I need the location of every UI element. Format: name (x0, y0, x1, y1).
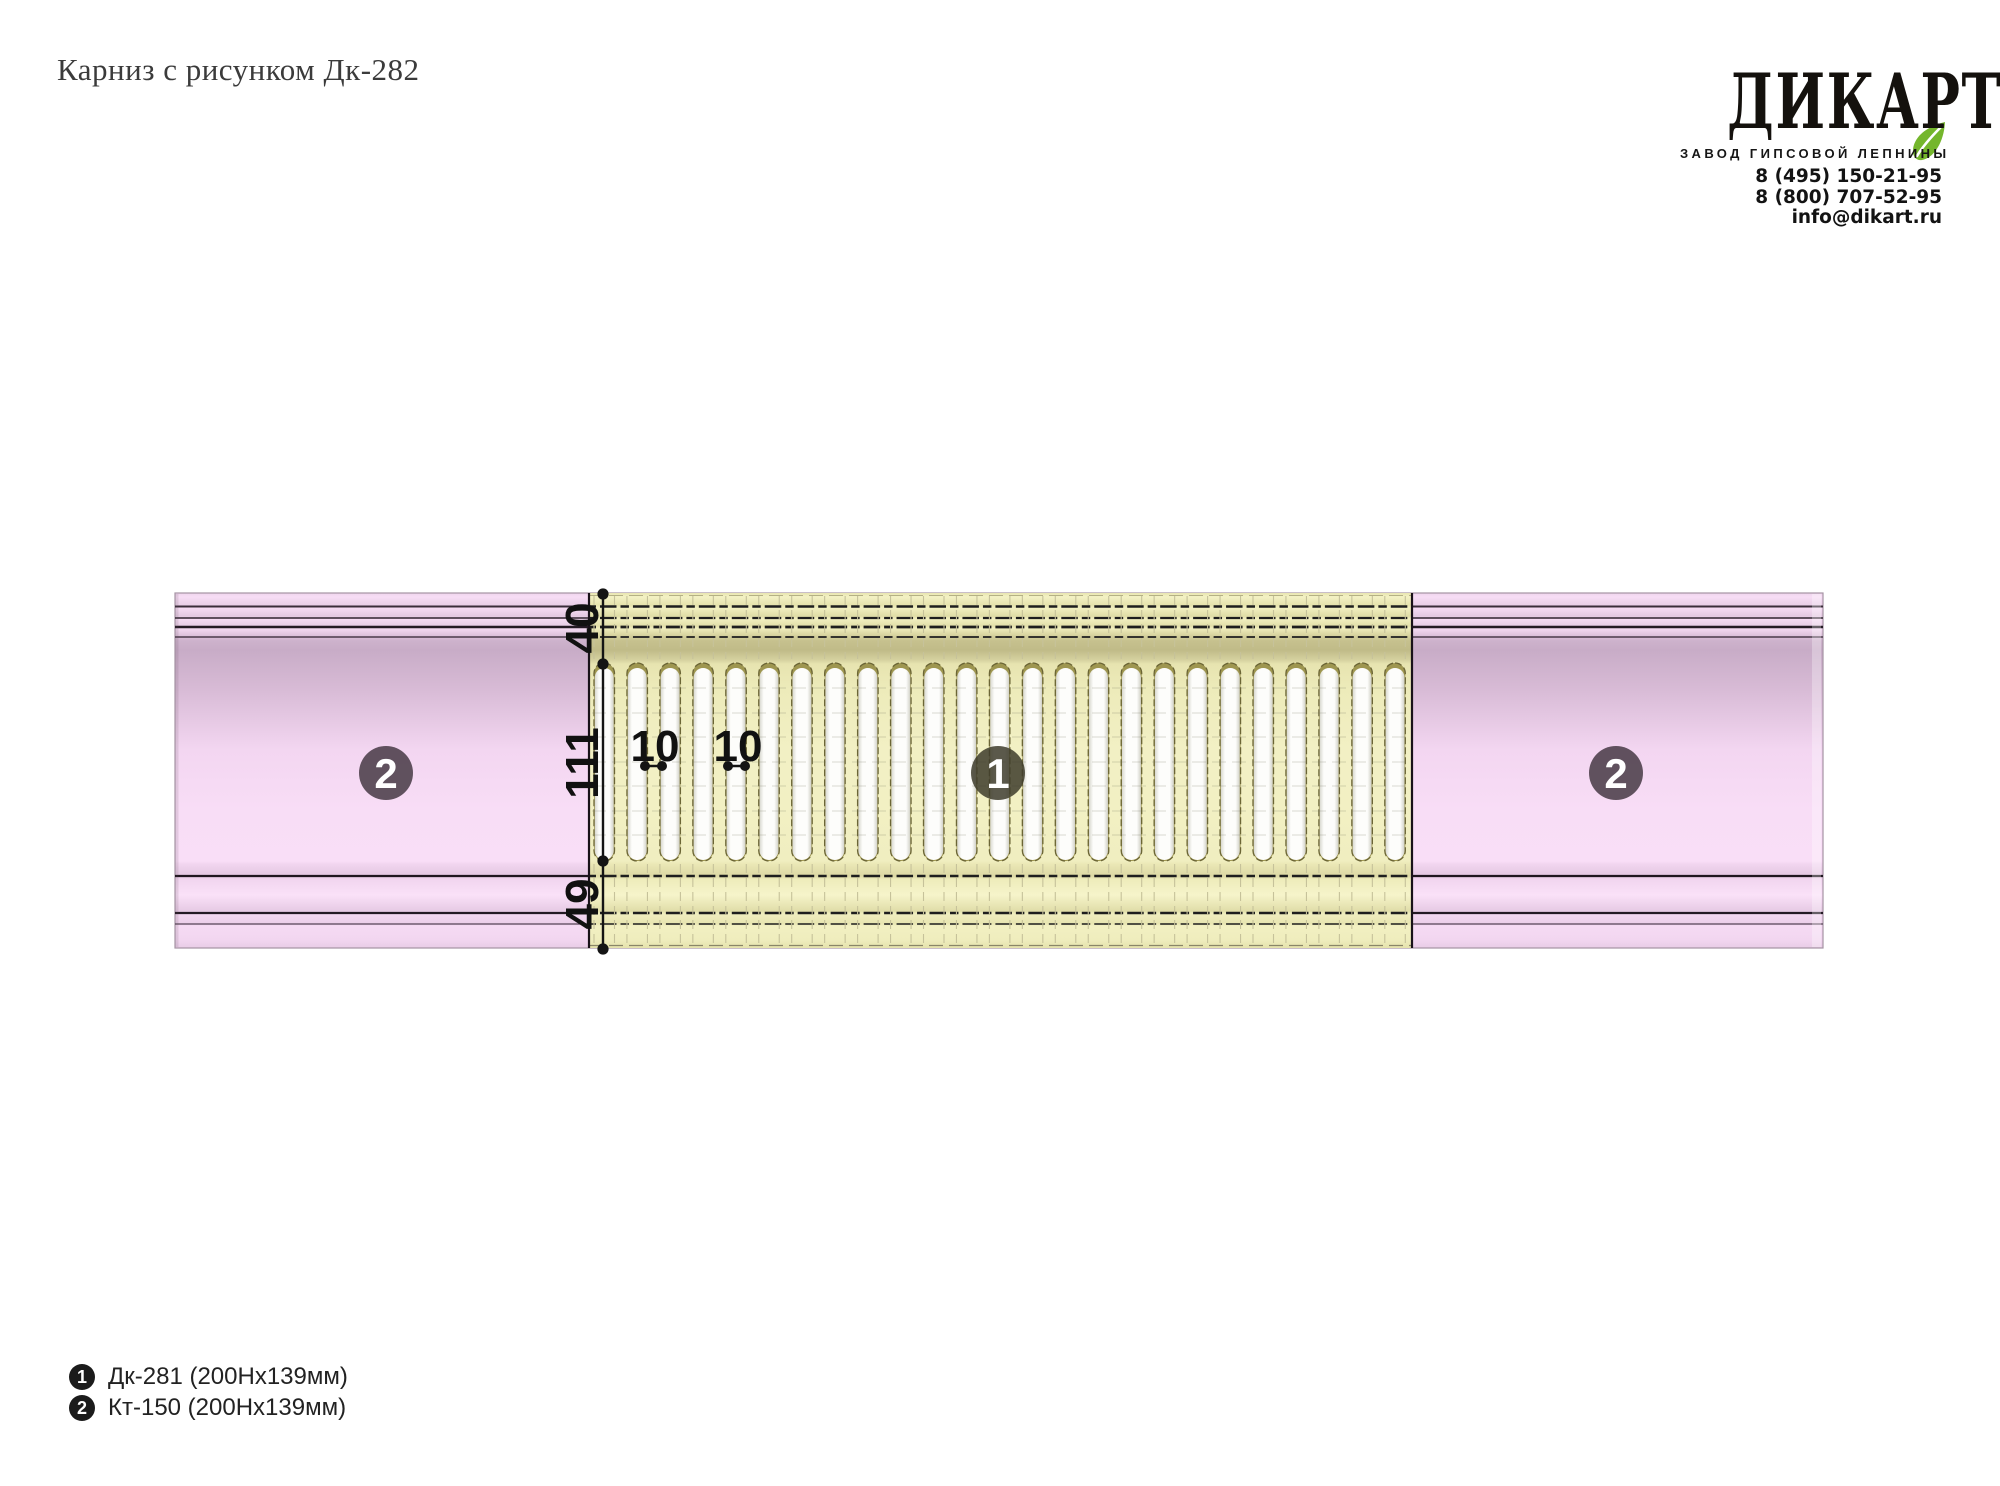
dim-label-10-gap: 10 (631, 722, 680, 771)
dim-label-49: 49 (556, 878, 608, 929)
dim-dot (597, 658, 608, 669)
slot-face (924, 668, 943, 860)
slot-face (1089, 668, 1108, 860)
dim-dot (723, 761, 733, 771)
slot-face (1023, 668, 1042, 860)
brand-tagline: ЗАВОД ГИПСОВОЙ ЛЕПНИНЫ (1680, 146, 1942, 161)
dim-dot (640, 761, 650, 771)
slot-face (1386, 668, 1405, 860)
legend-label-2: Кт-150 (200Нх139мм) (108, 1394, 346, 1422)
marker-2-left-number: 2 (374, 750, 397, 797)
dim-label-10-slot: 10 (714, 722, 763, 771)
marker-2-right-number: 2 (1604, 750, 1627, 797)
brand-contacts: 8 (495) 150-21-95 8 (800) 707-52-95 info… (1680, 167, 1942, 229)
left-edge-shade (176, 594, 179, 947)
dim-dot (597, 855, 608, 866)
slot-face (1221, 668, 1240, 860)
dim-label-40: 40 (556, 602, 608, 653)
dim-label-111: 111 (556, 727, 608, 799)
dim-dot (740, 761, 750, 771)
legend-bullet-1: 1 (69, 1364, 95, 1390)
brand-block: ДИКАРТ ЗАВОД ГИПСОВОЙ ЛЕПНИНЫ 8 (495) 15… (1680, 52, 1942, 229)
brand-phone-2: 8 (800) 707-52-95 (1680, 188, 1942, 209)
slot-face (891, 668, 910, 860)
legend: 1 Дк-281 (200Нх139мм) 2 Кт-150 (200Нх139… (69, 1361, 348, 1423)
slot-face (825, 668, 844, 860)
legend-bullet-2: 2 (69, 1395, 95, 1421)
legend-row-1: 1 Дк-281 (200Нх139мм) (69, 1361, 348, 1392)
page: 40 111 49 10 10 2 1 2 Карниз с рисунком … (0, 0, 2000, 1486)
slot-face (1155, 668, 1174, 860)
slot-face (1188, 668, 1207, 860)
legend-label-1: Дк-281 (200Нх139мм) (108, 1363, 348, 1391)
slot-face (1320, 668, 1339, 860)
slot-face (694, 668, 713, 860)
marker-1-number: 1 (986, 750, 1009, 797)
brand-phone-1: 8 (495) 150-21-95 (1680, 167, 1942, 188)
dim-dot (597, 943, 608, 954)
slot-face (1254, 668, 1273, 860)
dim-dot (597, 588, 608, 599)
right-edge-highlight (1812, 594, 1821, 947)
legend-row-2: 2 Кт-150 (200Нх139мм) (69, 1392, 348, 1423)
slot-face (1353, 668, 1372, 860)
slot-face (1287, 668, 1306, 860)
brand-logo-text: ДИКАРТ (1727, 66, 1942, 142)
slot-face (1122, 668, 1141, 860)
dim-dot (657, 761, 667, 771)
brand-email: info@dikart.ru (1680, 208, 1942, 229)
slot-face (1056, 668, 1075, 860)
page-title: Карниз с рисунком Дк-282 (57, 52, 420, 88)
slot-face (793, 668, 812, 860)
slot-face (858, 668, 877, 860)
